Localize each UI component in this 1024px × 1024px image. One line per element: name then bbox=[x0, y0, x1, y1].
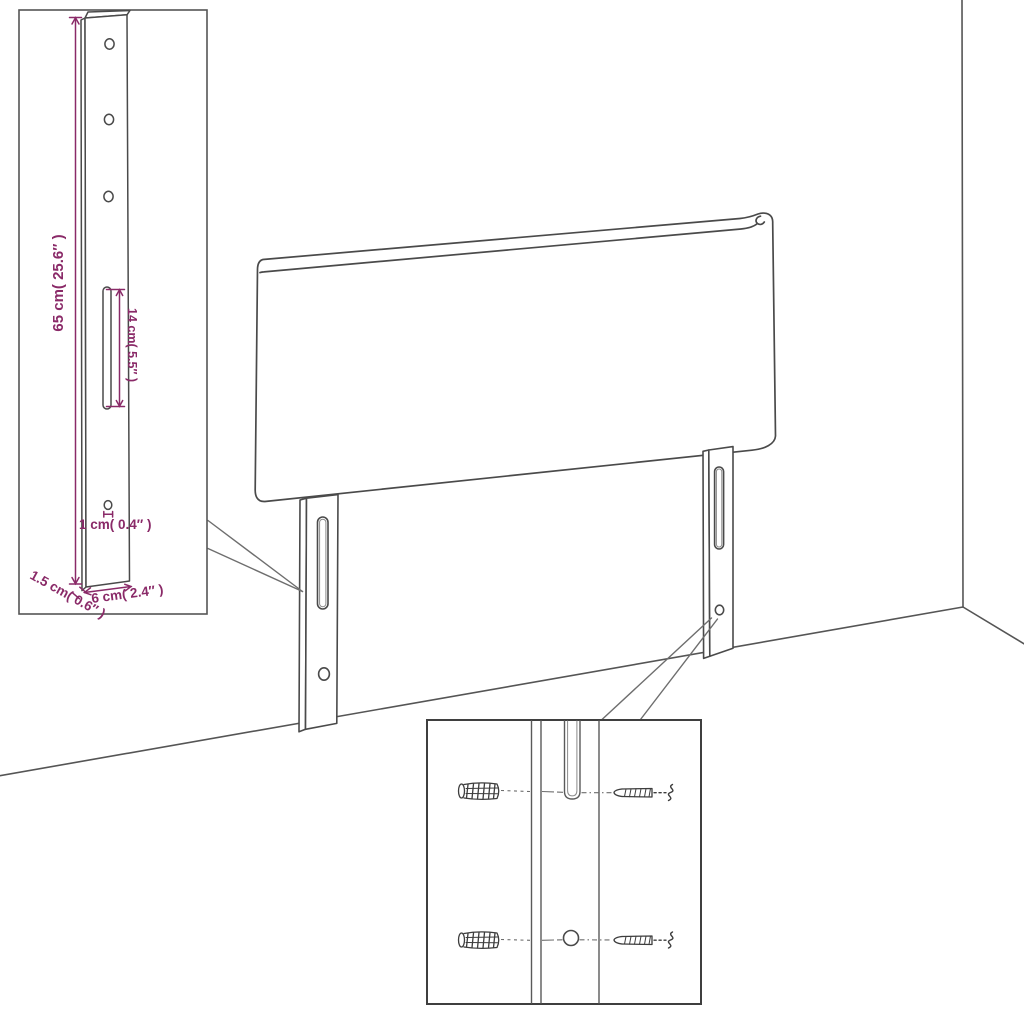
right-leg bbox=[703, 447, 733, 659]
left-leg bbox=[299, 495, 338, 732]
panel-outline bbox=[255, 213, 775, 501]
detail-callout-right bbox=[641, 619, 718, 720]
inset-leg-hole-1 bbox=[105, 39, 114, 49]
inset-callout-lower bbox=[208, 549, 303, 592]
inset-leg-hole-2 bbox=[104, 114, 113, 124]
dim-label-height: 65 cm( 25.6″ ) bbox=[50, 234, 67, 331]
detail-box-mounting bbox=[427, 720, 701, 1004]
diagram-canvas: 65 cm( 25.6″ ) 14 cm( 5.5″ ) 1 cm( 0.4″ … bbox=[0, 0, 1024, 1024]
dim-label-hole: 1 cm( 0.4″ ) bbox=[79, 517, 152, 532]
inset-leg-slot bbox=[103, 287, 111, 409]
left-leg-hole bbox=[319, 668, 330, 680]
wall-corner-line bbox=[962, 0, 963, 607]
inset-callout-upper bbox=[208, 521, 303, 592]
right-leg-slot-inner bbox=[716, 469, 721, 547]
left-leg-slot-inner bbox=[320, 519, 326, 607]
headboard-diagram: 65 cm( 25.6″ ) 14 cm( 5.5″ ) 1 cm( 0.4″ … bbox=[0, 0, 1024, 1024]
headboard-panel bbox=[255, 213, 775, 501]
inset-leg-hole-3 bbox=[104, 191, 113, 201]
right-leg-hole bbox=[715, 605, 723, 615]
detail-callout-left bbox=[602, 618, 712, 720]
inset-box-leg-detail: 65 cm( 25.6″ ) 14 cm( 5.5″ ) 1 cm( 0.4″ … bbox=[19, 10, 207, 621]
dim-label-slot: 14 cm( 5.5″ ) bbox=[125, 308, 139, 382]
inset-leg-small-hole bbox=[104, 501, 112, 510]
callout-lines bbox=[208, 521, 718, 720]
floor-line-right bbox=[963, 607, 1024, 645]
